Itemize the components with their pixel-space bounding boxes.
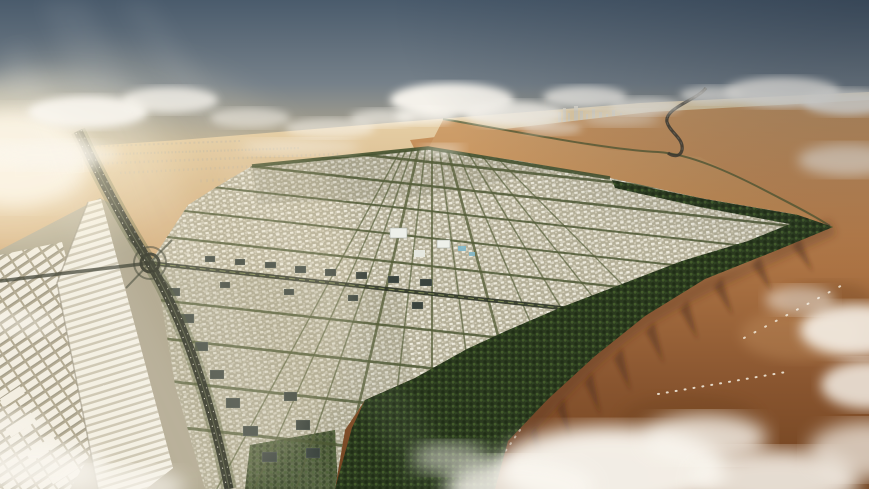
atmosphere [0,0,869,489]
sky-vignette [0,0,869,489]
aerial-city-render: Aerial render of a master-planned desert… [0,0,869,489]
render-canvas: Aerial render of a master-planned desert… [0,0,869,489]
